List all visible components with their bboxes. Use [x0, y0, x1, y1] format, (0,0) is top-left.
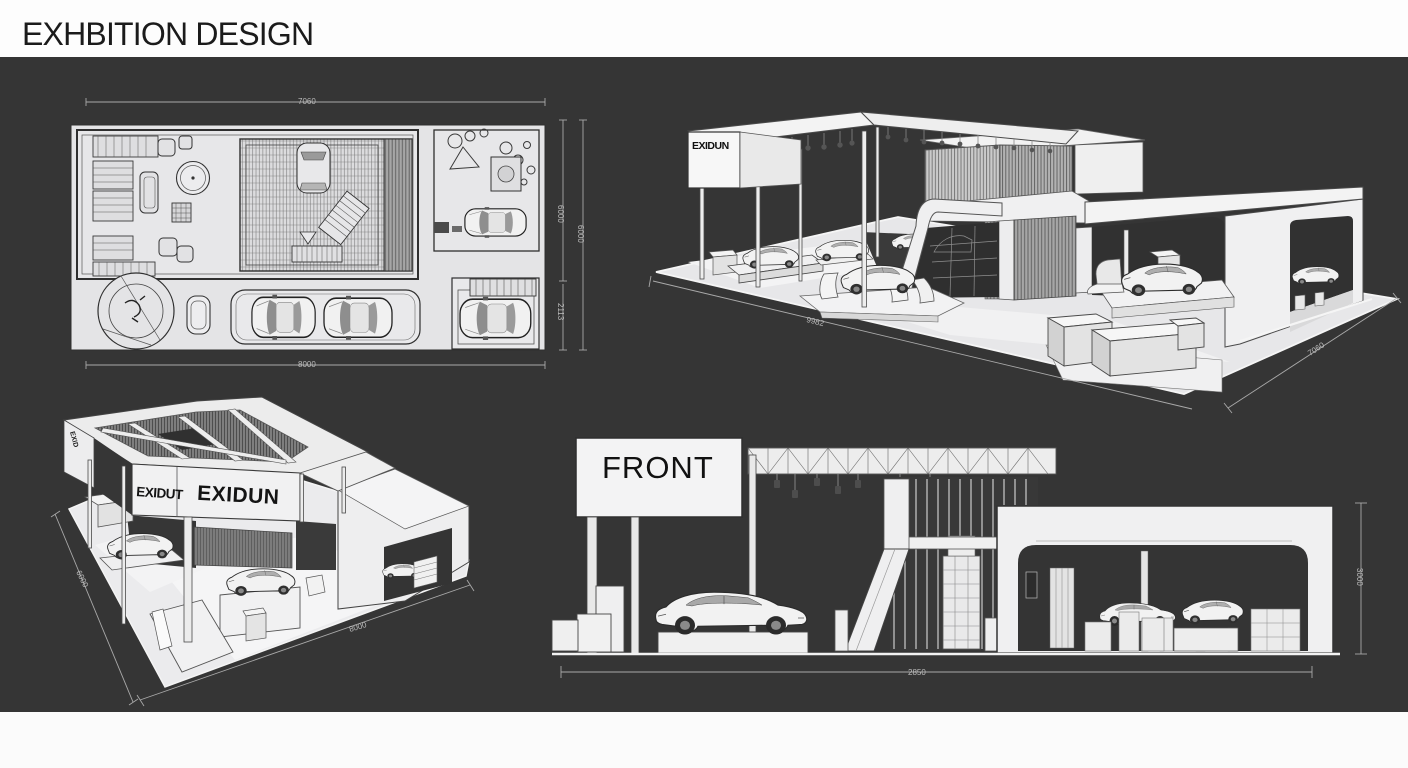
- svg-text:6000: 6000: [556, 205, 565, 223]
- svg-text:2113: 2113: [556, 303, 565, 321]
- svg-text:EXHBITION DESIGN: EXHBITION DESIGN: [22, 16, 313, 52]
- svg-text:EXIDUN: EXIDUN: [692, 140, 729, 152]
- svg-text:3000: 3000: [1355, 568, 1364, 586]
- svg-text:EXIDUN: EXIDUN: [197, 482, 280, 509]
- svg-text:6000: 6000: [576, 225, 585, 243]
- svg-text:8000: 8000: [298, 360, 316, 369]
- svg-text:7060: 7060: [298, 97, 316, 106]
- svg-text:2850: 2850: [908, 668, 926, 677]
- svg-text:FRONT: FRONT: [602, 450, 714, 485]
